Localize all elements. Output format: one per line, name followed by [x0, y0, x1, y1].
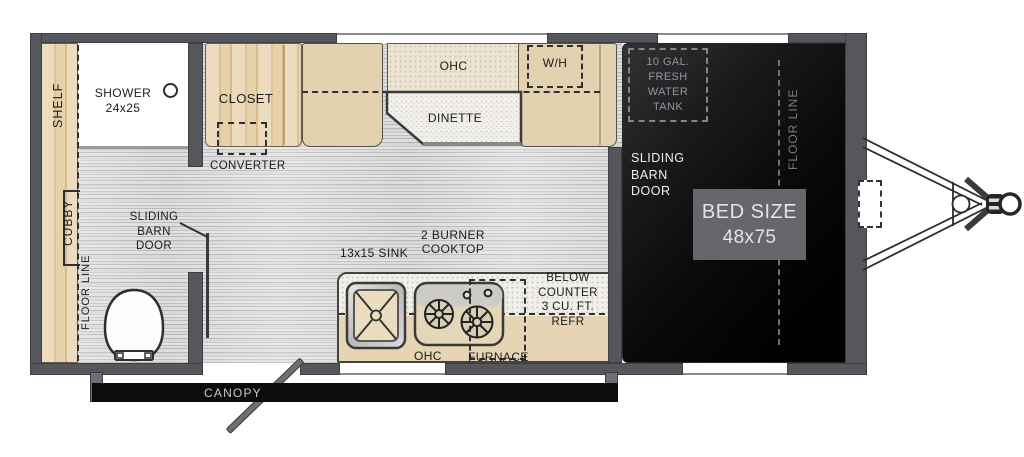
fresh-tank-line2: FRESH	[628, 70, 708, 85]
canopy-label: CANOPY	[204, 386, 262, 400]
propane-battery-box	[858, 180, 882, 228]
shower-label: SHOWER	[86, 86, 160, 100]
wall-top-mid	[547, 33, 658, 43]
bed-size-box: BED SIZE 48x75	[693, 189, 806, 260]
dinette-label: DINETTE	[400, 111, 510, 125]
cooktop-line1: 2 BURNER	[408, 228, 498, 242]
refr-line1: BELOW	[528, 271, 608, 286]
fresh-tank-label: 10 GAL. FRESH WATER TANK	[628, 55, 708, 115]
furnace-label: FURNACE	[468, 350, 529, 364]
floor-line-left-label: FLOOR LINE	[80, 254, 92, 330]
sink-label: 13x15 SINK	[340, 246, 408, 260]
bath-barn-door-panel	[206, 233, 209, 338]
bed-size-dims: 48x75	[693, 227, 806, 249]
shower-shelf-divider	[77, 45, 79, 148]
window-dinette	[337, 33, 547, 43]
water-heater-label: W/H	[527, 56, 583, 70]
floor-line-left-dash	[77, 152, 79, 361]
window-bed-bottom	[683, 363, 787, 375]
fresh-tank-line3: WATER	[628, 85, 708, 100]
bed-barn-line1: SLIDING	[631, 150, 685, 167]
wh-cabinet-seam	[599, 45, 601, 145]
wall-bed-divider	[608, 147, 622, 363]
floor-line-right-label: FLOOR LINE	[786, 78, 800, 170]
bath-barn-line2: BARN	[118, 225, 190, 240]
shelf-label: SHELF	[51, 62, 65, 128]
bed-size-label: BED SIZE	[693, 201, 806, 224]
bath-barn-door-label: SLIDING BARN DOOR	[118, 210, 190, 254]
closet-label: CLOSET	[207, 91, 285, 106]
wall-bottom-a	[300, 363, 340, 375]
wall-bath-divider	[188, 272, 203, 365]
wall-bottom-b	[445, 363, 683, 375]
refr-line3: 3 CU. FT.	[528, 300, 608, 315]
cubby-label: CUBBY	[61, 202, 75, 246]
kitchen-sink	[345, 281, 407, 350]
refrigerator-label: BELOW COUNTER 3 CU. FT. REFR	[528, 271, 608, 329]
window-kitchen	[340, 363, 445, 375]
fresh-tank-line4: TANK	[628, 100, 708, 115]
dinette-ohc-label: OHC	[387, 59, 520, 73]
converter-label: CONVERTER	[210, 160, 286, 172]
dinette-bench-left	[302, 43, 383, 147]
toilet	[101, 288, 167, 366]
shower-size-label: 24x25	[86, 101, 160, 115]
bed-barn-line2: BARN	[631, 167, 685, 184]
kitchen-ohc-label: OHC	[414, 349, 442, 363]
cooktop-line2: COOKTOP	[408, 242, 498, 256]
bed-barn-door-label: SLIDING BARN DOOR	[631, 150, 685, 200]
refr-line4: REFR	[528, 315, 608, 330]
fresh-tank-line1: 10 GAL.	[628, 55, 708, 70]
bath-barn-line1: SLIDING	[118, 210, 190, 225]
wall-left	[30, 33, 42, 375]
refr-line2: COUNTER	[528, 286, 608, 301]
bath-barn-line3: DOOR	[118, 239, 190, 254]
shower-head-icon	[163, 83, 178, 98]
furnace-box	[469, 279, 526, 360]
canopy-bar: CANOPY	[92, 383, 618, 402]
trailer-hitch	[857, 128, 1024, 283]
wall-bottom-right	[787, 363, 867, 375]
window-bed-top	[658, 33, 788, 43]
cooktop-label: 2 BURNER COOKTOP	[408, 228, 498, 256]
wall-top-left	[30, 33, 337, 43]
floorplan-canvas: BED SIZE 48x75 CANOPY	[0, 0, 1024, 457]
bed-barn-line3: DOOR	[631, 183, 685, 200]
wall-shower-right	[188, 43, 203, 167]
converter-box	[217, 122, 267, 155]
